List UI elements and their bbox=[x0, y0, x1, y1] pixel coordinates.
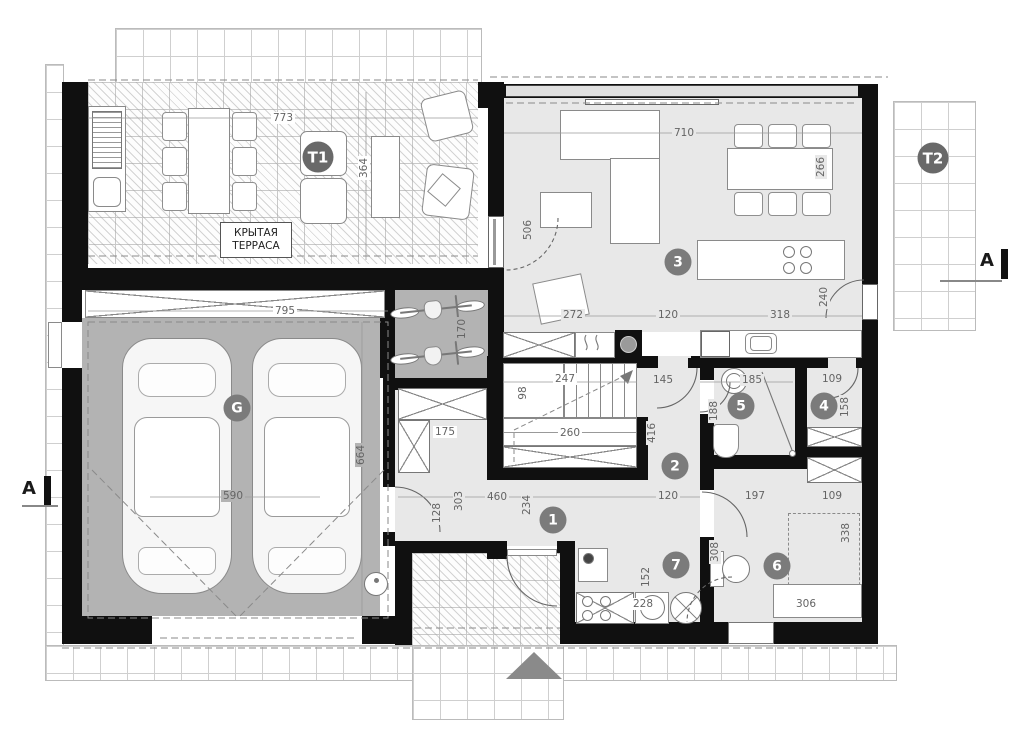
garage-lintel-band bbox=[85, 290, 385, 318]
entry-porch bbox=[412, 553, 560, 645]
section-line-left bbox=[22, 505, 58, 507]
kitchen-sink-bowl bbox=[750, 336, 772, 351]
wall-hall-left-b bbox=[383, 532, 395, 546]
dimension-label: 98 bbox=[517, 384, 529, 401]
fridge bbox=[701, 331, 730, 357]
grill bbox=[92, 111, 122, 169]
coffee-table bbox=[540, 192, 592, 228]
water-heater-dot bbox=[374, 578, 379, 583]
room-badge-t2: T2 bbox=[918, 143, 949, 174]
under-stair-storage bbox=[503, 446, 637, 468]
section-line-right bbox=[940, 280, 1002, 282]
dimension-label: 460 bbox=[485, 491, 509, 503]
wall-corridor-room5-b bbox=[700, 414, 714, 490]
water-heater bbox=[364, 572, 388, 596]
section-marker-left: A bbox=[22, 478, 36, 499]
entrance-arrow bbox=[506, 652, 562, 679]
car bbox=[252, 338, 362, 594]
dimension-label: 590 bbox=[221, 490, 245, 502]
dimension-label: 303 bbox=[453, 489, 465, 513]
wall-porch-right bbox=[560, 541, 575, 631]
dimension-label: 338 bbox=[840, 521, 852, 545]
wall-under-kitchen-counter-a bbox=[688, 358, 828, 368]
wall-hall-left-a bbox=[383, 390, 395, 487]
terrace-label-line2: ТЕРРАСА bbox=[224, 240, 288, 253]
dining-chair bbox=[802, 124, 831, 148]
dimension-label: 109 bbox=[820, 373, 844, 385]
living-room-window-band bbox=[506, 85, 858, 97]
desk-chair bbox=[722, 555, 750, 583]
dimension-label: 773 bbox=[271, 112, 295, 124]
dining-chair bbox=[768, 124, 797, 148]
car-hood bbox=[268, 363, 346, 397]
dimension-label: 260 bbox=[558, 427, 582, 439]
terrace-dining-table bbox=[188, 108, 230, 214]
dimension-label: 306 bbox=[794, 598, 818, 610]
garage-hall-door-opening bbox=[383, 487, 395, 532]
terrace-sink bbox=[93, 177, 121, 207]
shower-drain bbox=[789, 450, 796, 457]
utility-burner bbox=[600, 596, 611, 607]
car-trunk bbox=[268, 547, 346, 575]
utility-burner bbox=[582, 610, 593, 621]
wall-hall-bottom-a bbox=[395, 541, 487, 553]
dimension-label: 170 bbox=[456, 317, 468, 341]
dimension-label: 188 bbox=[708, 399, 720, 423]
bike-saddle bbox=[423, 346, 443, 367]
terrace-sliding-door bbox=[488, 216, 504, 268]
terrace-chair bbox=[162, 112, 187, 141]
terrace-label-line1: КРЫТАЯ bbox=[224, 227, 288, 240]
wall-terrace-bottom bbox=[62, 268, 494, 290]
utility-burner bbox=[600, 610, 611, 621]
dimension-label: 416 bbox=[646, 421, 658, 445]
sofa-l-side bbox=[610, 158, 660, 244]
dining-chair bbox=[768, 192, 797, 216]
dimension-label: 158 bbox=[839, 395, 851, 419]
hall-cabinet bbox=[503, 332, 575, 358]
wall-bottom-a bbox=[560, 622, 728, 644]
room-badge-1: 1 bbox=[540, 507, 567, 534]
wall-right-upper bbox=[862, 84, 878, 284]
dimension-label: 109 bbox=[820, 490, 844, 502]
wall-corridor-top-stub-a bbox=[648, 356, 658, 368]
wall-room5-room4 bbox=[795, 368, 807, 458]
dimension-label: 120 bbox=[656, 309, 680, 321]
dimension-label: 272 bbox=[561, 309, 585, 321]
terrace-coffee-table bbox=[371, 136, 400, 218]
dimension-label: 506 bbox=[522, 218, 534, 242]
wall-terrace-left bbox=[62, 82, 88, 268]
wall-bottom-left bbox=[62, 616, 152, 644]
cooktop-burner bbox=[783, 246, 795, 258]
dining-chair bbox=[734, 124, 763, 148]
cooktop-burner bbox=[800, 246, 812, 258]
car-roof bbox=[264, 417, 350, 517]
dimension-label: 228 bbox=[631, 598, 655, 610]
dimension-label: 266 bbox=[815, 155, 827, 179]
hall-wardrobe bbox=[398, 388, 487, 420]
boiler bbox=[578, 548, 608, 582]
wall-under-room5 bbox=[700, 455, 807, 469]
section-letter: A bbox=[22, 478, 36, 499]
stair-treads bbox=[563, 363, 637, 418]
dimension-label: 145 bbox=[651, 374, 675, 386]
terrace-chair bbox=[162, 182, 187, 211]
wall-stair-left bbox=[487, 356, 503, 480]
stair-landing bbox=[503, 363, 565, 418]
dimension-label: 128 bbox=[431, 501, 443, 525]
hall-wardrobe bbox=[398, 420, 430, 473]
dimension-label: 185 bbox=[740, 374, 764, 386]
room-badge-6: 6 bbox=[764, 553, 791, 580]
flue-circle bbox=[620, 336, 637, 353]
section-bar-right bbox=[1001, 249, 1008, 279]
fireplace bbox=[575, 332, 615, 358]
bike-saddle bbox=[423, 300, 443, 321]
dimension-label: 197 bbox=[743, 490, 767, 502]
room-badge-g: G bbox=[224, 395, 251, 422]
dimension-label: 710 bbox=[672, 127, 696, 139]
room-badge-3: 3 bbox=[665, 249, 692, 276]
terrace-chair bbox=[232, 182, 257, 211]
dimension-label: 234 bbox=[521, 493, 533, 517]
dimension-label: 247 bbox=[553, 373, 577, 385]
room-badge-4: 4 bbox=[811, 393, 838, 420]
dryer bbox=[670, 592, 702, 624]
room6-exterior-door bbox=[728, 622, 774, 644]
dimension-label: 795 bbox=[273, 305, 297, 317]
paving-top-strip bbox=[115, 28, 482, 84]
entry-door-leaf bbox=[507, 549, 557, 556]
dimension-label: 664 bbox=[355, 443, 367, 467]
wall-under-kitchen-counter-b bbox=[856, 358, 878, 368]
terrace-label: КРЫТАЯ ТЕРРАСА bbox=[220, 222, 292, 258]
cooktop-burner bbox=[783, 262, 795, 274]
wall-under-room4 bbox=[795, 447, 862, 457]
dining-chair bbox=[802, 192, 831, 216]
garage-side-door-opening bbox=[62, 322, 82, 368]
terrace-2-paving bbox=[893, 101, 976, 331]
dimension-label: 120 bbox=[656, 490, 680, 502]
wall-bottom-b bbox=[774, 622, 878, 644]
kitchen-island bbox=[697, 240, 845, 280]
dimension-label: 318 bbox=[768, 309, 792, 321]
dimension-label: 175 bbox=[433, 426, 457, 438]
wardrobe bbox=[807, 457, 862, 483]
wall-garage-door-post bbox=[362, 616, 398, 644]
car-trunk bbox=[138, 547, 216, 575]
sliding-door-rail bbox=[493, 219, 496, 265]
room-badge-t1: T1 bbox=[303, 142, 334, 173]
room-badge-7: 7 bbox=[663, 552, 690, 579]
wall-stair-bottom bbox=[503, 468, 648, 480]
section-marker-right: A bbox=[980, 250, 994, 271]
terrace-chair bbox=[232, 147, 257, 176]
wall-porch-left bbox=[395, 553, 412, 645]
car-hood bbox=[138, 363, 216, 397]
garage-gate-opening bbox=[152, 616, 362, 644]
dimension-label: 308 bbox=[709, 540, 721, 564]
toilet bbox=[713, 424, 739, 458]
wall-corridor-room5-a bbox=[700, 368, 714, 380]
sofa-l-top bbox=[560, 110, 660, 160]
dimension-label: 152 bbox=[640, 565, 652, 589]
dimension-label: 364 bbox=[358, 156, 370, 180]
wardrobe bbox=[807, 427, 862, 447]
car bbox=[122, 338, 232, 594]
terrace-chair bbox=[232, 112, 257, 141]
garage-side-door-leaf bbox=[48, 322, 62, 368]
wall-right-lower bbox=[862, 320, 878, 644]
terrace-chair bbox=[162, 147, 187, 176]
cooktop-burner bbox=[800, 262, 812, 274]
car-roof bbox=[134, 417, 220, 517]
terrace-sofa-seat bbox=[300, 178, 347, 224]
floor-plan: КРЫТАЯ ТЕРРАСА A A bbox=[0, 0, 1024, 732]
window-inner-detail bbox=[585, 99, 719, 105]
boiler-dial bbox=[583, 553, 594, 564]
utility-burner bbox=[582, 596, 593, 607]
section-bar-left bbox=[44, 476, 51, 505]
room-badge-2: 2 bbox=[662, 453, 689, 480]
dimension-label: 240 bbox=[818, 285, 830, 309]
entry-door-jamb bbox=[487, 541, 507, 559]
dining-chair bbox=[734, 192, 763, 216]
room-badge-5: 5 bbox=[728, 393, 755, 420]
terrace2-door bbox=[862, 284, 878, 320]
section-letter: A bbox=[980, 250, 994, 271]
